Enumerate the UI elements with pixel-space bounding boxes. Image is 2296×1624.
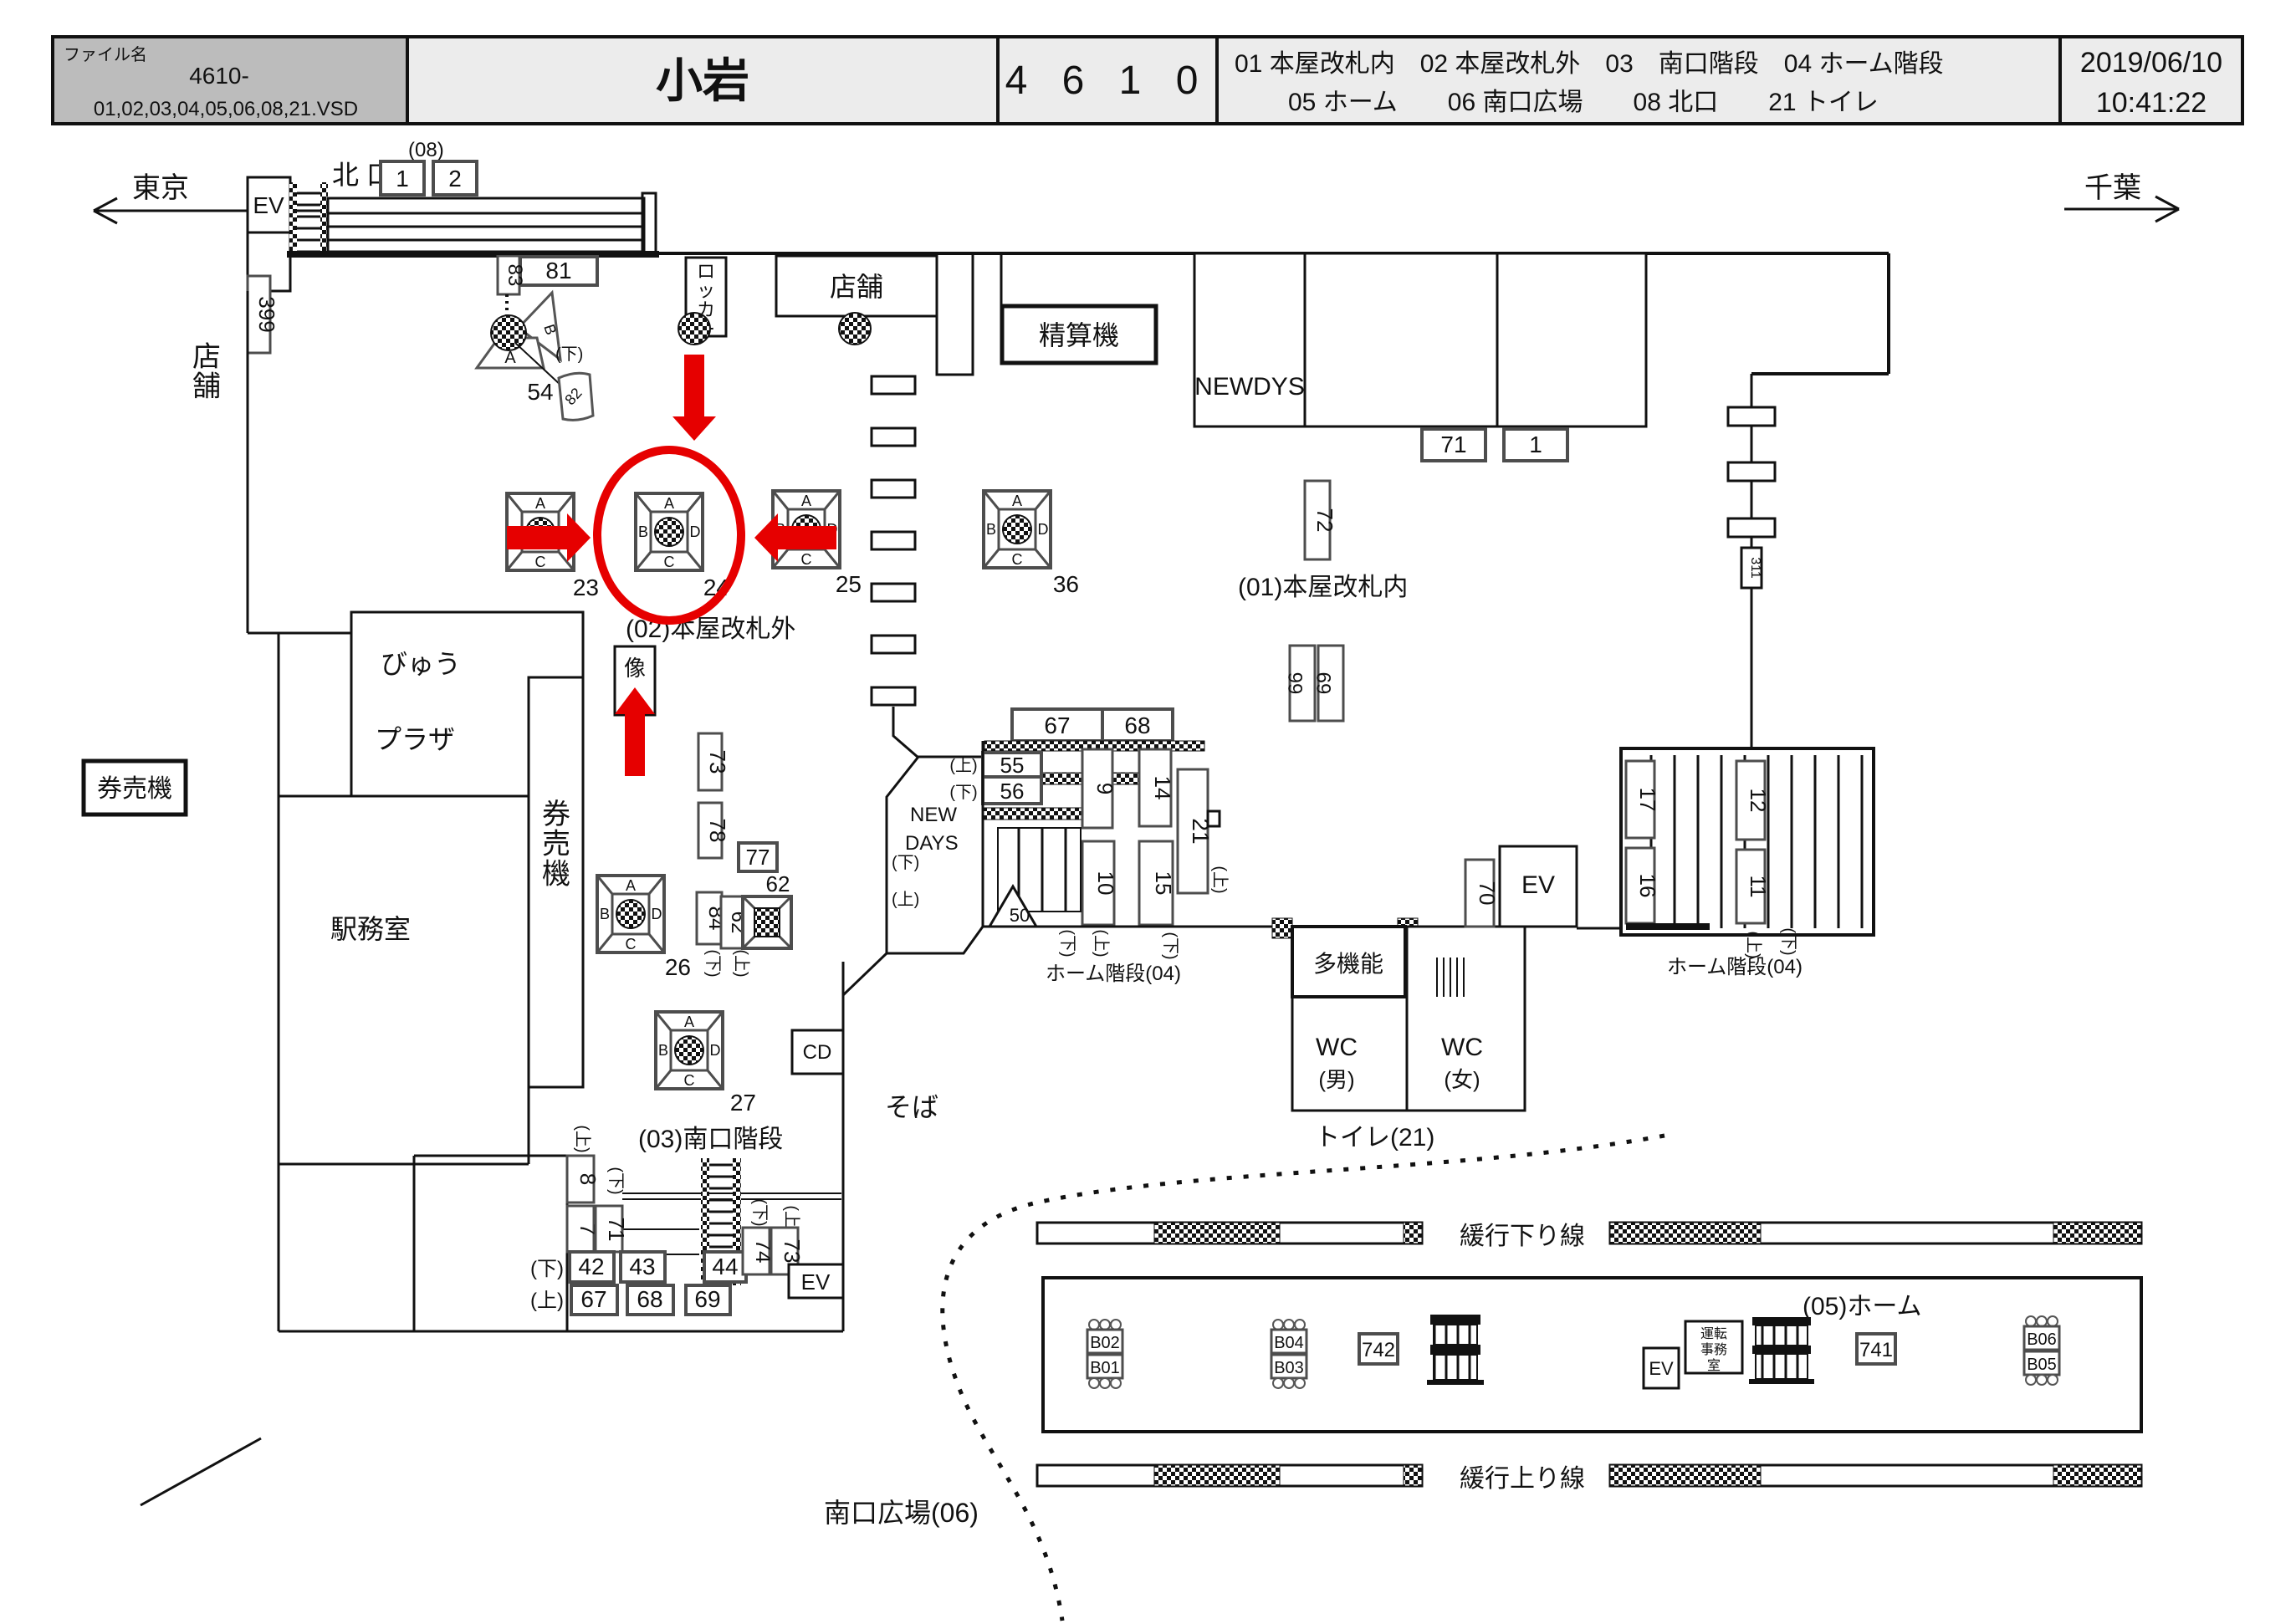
pillar-27: A B C D 27 bbox=[656, 1012, 756, 1116]
south-stairs-area: (03)南口階段 (上) 8 (下) 7 71 (下) 42 43 44 (上)… bbox=[279, 953, 938, 1331]
ad-box-56-label: 56 bbox=[1000, 779, 1025, 804]
ad-box-70-label: 70 bbox=[1475, 881, 1500, 906]
east-label: 千葉 bbox=[2084, 172, 2141, 204]
label-up: (上) bbox=[892, 890, 919, 909]
platform-ev-label: EV bbox=[1649, 1358, 1674, 1379]
ad-box-69n-label: 69 bbox=[1313, 672, 1336, 695]
ticket-gate bbox=[1728, 407, 1775, 426]
ad-box-66-label: 66 bbox=[1285, 672, 1307, 695]
pillar-62-core bbox=[754, 908, 780, 937]
pillar-face-a: A bbox=[801, 493, 811, 509]
soba-wall bbox=[843, 953, 887, 995]
ops-room-line1: 運転 bbox=[1700, 1326, 1727, 1341]
station-name: 小岩 bbox=[656, 54, 749, 107]
gate-wall-bend bbox=[893, 707, 918, 758]
pillar-face-a: A bbox=[1012, 493, 1022, 509]
ad-box-43-label: 43 bbox=[629, 1254, 655, 1279]
room-3 bbox=[1497, 253, 1646, 426]
pillar-54-num: 54 bbox=[527, 379, 553, 405]
ticket-gate bbox=[1728, 518, 1775, 537]
ops-room-line3: 室 bbox=[1707, 1358, 1721, 1373]
track-bar-hatch bbox=[1404, 1223, 1422, 1244]
ad-box-14-label: 14 bbox=[1150, 776, 1175, 800]
fence-hatch bbox=[1041, 773, 1082, 784]
bench-b06-b05: B06 B05 bbox=[2024, 1316, 2059, 1385]
east-stairs: 17 16 12 11 (上) (下) ホーム階段(04) bbox=[1621, 748, 1874, 978]
north-walkway-lines bbox=[328, 213, 644, 240]
ticket-gate bbox=[1728, 462, 1775, 481]
bench-b06-label: B06 bbox=[2027, 1330, 2057, 1349]
west-label: 東京 bbox=[132, 172, 189, 204]
platform-stairs-1 bbox=[1427, 1315, 1484, 1385]
ticket-gate bbox=[872, 480, 915, 498]
date: 2019/06/10 bbox=[2080, 47, 2222, 79]
pillar-face-c: C bbox=[626, 936, 637, 952]
label-down: (下) bbox=[703, 949, 722, 977]
station-map-canvas: ファイル名 4610- 01,02,03,04,05,06,08,21.VSD … bbox=[0, 0, 2296, 1624]
ad-box-44-label: 44 bbox=[712, 1254, 738, 1279]
pillar-face-a: A bbox=[535, 495, 545, 512]
pillar-face-d: D bbox=[1038, 521, 1049, 538]
ad-box-1-label: 1 bbox=[396, 166, 409, 192]
track-bar-hatch bbox=[1154, 1223, 1280, 1244]
pillar-face-c: C bbox=[801, 551, 812, 568]
ticket-gate bbox=[872, 687, 915, 705]
label-up: (上) bbox=[573, 1125, 592, 1152]
pillar-54-down: (下) bbox=[555, 345, 583, 364]
bench-b05-label: B05 bbox=[2027, 1356, 2057, 1374]
ad-box-67s-label: 67 bbox=[580, 1286, 606, 1312]
label-down: (下) bbox=[606, 1167, 625, 1194]
wall-pillar bbox=[937, 253, 973, 375]
label-up: (上) bbox=[949, 756, 977, 775]
east-stairs-thick-line bbox=[1626, 923, 1710, 930]
label-up: (上) bbox=[1092, 929, 1111, 957]
north-walkway bbox=[328, 198, 644, 252]
platform-stairs-2 bbox=[1749, 1317, 1814, 1384]
room-2 bbox=[1305, 253, 1497, 426]
soba-label: そば bbox=[885, 1092, 938, 1122]
shop-center-label: 店舗 bbox=[830, 272, 883, 302]
ad-box-10-label: 10 bbox=[1093, 871, 1118, 896]
bench-b01-label: B01 bbox=[1090, 1359, 1120, 1377]
ad-box-741-label: 741 bbox=[1859, 1339, 1893, 1361]
label-down: (下) bbox=[1779, 927, 1797, 955]
ad-box-77-label: 77 bbox=[746, 845, 770, 870]
ad-box-2-label: 2 bbox=[448, 166, 462, 192]
west-rooms: 券売機 びゅう プラザ 券売機 駅務室 bbox=[84, 612, 583, 1331]
label-up: (上) bbox=[1210, 866, 1230, 893]
file-name-line2: 01,02,03,04,05,06,08,21.VSD bbox=[94, 98, 358, 120]
pillar-face-d: D bbox=[652, 906, 662, 922]
newdys-label: NEWDYS bbox=[1194, 373, 1305, 401]
pillar-face-d: D bbox=[710, 1042, 721, 1059]
ticket-gate bbox=[872, 376, 915, 394]
track-bar-hatch bbox=[2053, 1465, 2141, 1486]
ad-box-73s-label: 73 bbox=[780, 1239, 805, 1264]
ad-box-67c-label: 67 bbox=[1044, 712, 1070, 738]
area05-label: (05)ホーム bbox=[1803, 1293, 1921, 1320]
legend-line2: 05 ホーム 06 南口広場 08 北口 21 トイレ bbox=[1288, 89, 1879, 116]
ad-box-71s-label: 71 bbox=[604, 1218, 629, 1242]
station-office-label: 駅務室 bbox=[330, 914, 411, 944]
ops-room-line2: 事務 bbox=[1700, 1342, 1727, 1357]
concourse-ev-label: EV bbox=[1521, 871, 1555, 899]
central-stairs: NEW DAYS (下) (上) 67 68 (上) 55 (下) 56 9 1… bbox=[887, 709, 1292, 985]
pillar-54-column bbox=[491, 315, 526, 350]
column-shop bbox=[839, 313, 871, 345]
north-stairs-treads bbox=[297, 186, 320, 254]
ad-box-399-label: 399 bbox=[254, 296, 279, 332]
pillar-36-num: 36 bbox=[1053, 571, 1079, 597]
south-ev-label: EV bbox=[801, 1269, 831, 1295]
track-bar-hatch bbox=[1154, 1465, 1280, 1486]
ad-box-42-label: 42 bbox=[578, 1254, 604, 1279]
pillar-54-a: A bbox=[504, 349, 516, 367]
label-down: (下) bbox=[750, 1198, 769, 1226]
platform-outline bbox=[1043, 1278, 2141, 1432]
ad-box-83-label: 83 bbox=[504, 264, 526, 287]
ad-box-73-label: 73 bbox=[705, 750, 730, 774]
ad-box-81-label: 81 bbox=[545, 258, 571, 283]
ticket-gate bbox=[872, 428, 915, 446]
pillar-face-b: B bbox=[638, 523, 648, 540]
pillar-face-c: C bbox=[684, 1072, 695, 1089]
pillar-face-a: A bbox=[664, 495, 674, 512]
shop-west-label: 店舗 bbox=[192, 341, 221, 403]
ticket-gate bbox=[872, 584, 915, 601]
wc-women: WC bbox=[1441, 1034, 1483, 1061]
bench-b04-label: B04 bbox=[1274, 1334, 1304, 1352]
north-stairs-rail-left bbox=[289, 182, 297, 256]
column-locker bbox=[678, 313, 710, 345]
ad-box-71n-label: 71 bbox=[1440, 432, 1466, 457]
view-plaza-line1: びゅう bbox=[381, 649, 461, 679]
label-down: (下) bbox=[530, 1258, 564, 1280]
view-plaza-line2: プラザ bbox=[375, 724, 455, 754]
pillar-face-c: C bbox=[1012, 551, 1023, 568]
ad-box-9-label: 9 bbox=[1092, 783, 1117, 794]
fence-hatch bbox=[1272, 918, 1292, 938]
wc-men-sub: (男) bbox=[1318, 1067, 1354, 1092]
label-down: (下) bbox=[892, 854, 919, 872]
central-stairs-label: ホーム階段(04) bbox=[1046, 963, 1181, 985]
wc-men: WC bbox=[1316, 1034, 1358, 1061]
ad-box-1n-label: 1 bbox=[1529, 432, 1542, 457]
toilet-label: トイレ(21) bbox=[1315, 1124, 1434, 1152]
direction-east: 千葉 bbox=[2064, 172, 2179, 222]
file-name-label: ファイル名 bbox=[64, 45, 147, 64]
label-up: (上) bbox=[1744, 931, 1763, 958]
bench-b02-label: B02 bbox=[1090, 1334, 1120, 1352]
time: 10:41:22 bbox=[2096, 87, 2207, 119]
track-bar-hatch bbox=[1610, 1465, 1761, 1486]
pillar-face-d: D bbox=[690, 523, 701, 540]
legend-line1: 01 本屋改札内 02 本屋改札外 03 南口階段 04 ホーム階段 bbox=[1235, 50, 1944, 78]
cd-label: CD bbox=[803, 1041, 832, 1064]
ad-box-311-label: 311 bbox=[1748, 557, 1762, 579]
track-down-line: 緩行下り線 bbox=[1037, 1223, 2141, 1250]
pillar-24: A B C D 24 bbox=[636, 493, 729, 600]
pillar-face-a: A bbox=[626, 877, 636, 894]
track-up-label: 緩行上り線 bbox=[1460, 1465, 1585, 1493]
area02-ad-cluster: 73 78 77 84 62 62 (下) (上) bbox=[697, 733, 791, 978]
ad-box-17-label: 17 bbox=[1635, 788, 1660, 812]
track-bar-hatch bbox=[1610, 1223, 1761, 1244]
fence-hatch bbox=[983, 808, 1082, 820]
ad-box-16-label: 16 bbox=[1635, 874, 1660, 898]
platform: (05)ホーム B02 B01 B04 B03 742 EV bbox=[1043, 1278, 2141, 1432]
ad-box-15-label: 15 bbox=[1151, 871, 1176, 896]
ticket-machine-sign-label: 券売機 bbox=[97, 775, 172, 803]
wc-women-sub: (女) bbox=[1444, 1067, 1480, 1092]
ad-box-11-label: 11 bbox=[1746, 876, 1771, 898]
ad-box-742-label: 742 bbox=[1362, 1339, 1395, 1361]
pillar-25-num: 25 bbox=[836, 571, 862, 597]
area08-code: (08) bbox=[408, 139, 444, 161]
label-down: (下) bbox=[1161, 932, 1179, 959]
newdays-line2: DAYS bbox=[905, 832, 959, 855]
ad-box-68s-label: 68 bbox=[637, 1286, 662, 1312]
ad-box-72-label: 72 bbox=[1312, 508, 1337, 533]
pillar-27-num: 27 bbox=[730, 1090, 756, 1116]
fare-adjust-label: 精算機 bbox=[1039, 320, 1119, 350]
ticket-gate bbox=[872, 532, 915, 549]
pillar-face-b: B bbox=[658, 1042, 668, 1059]
pillar-54-group: A B 54 (下) 82 bbox=[477, 293, 593, 420]
north-ev-label: EV bbox=[253, 192, 284, 218]
bench-b03-label: B03 bbox=[1274, 1359, 1304, 1377]
ticket-gate bbox=[872, 636, 915, 653]
file-name-line1: 4610- bbox=[189, 63, 249, 89]
label-down: (下) bbox=[949, 784, 977, 802]
area03-label: (03)南口階段 bbox=[638, 1126, 783, 1153]
pillar-face-c: C bbox=[664, 554, 675, 570]
label-down: (下) bbox=[1058, 929, 1076, 957]
ticket-machine-strip-label: 券売機 bbox=[542, 799, 570, 890]
label-up: (上) bbox=[530, 1289, 564, 1312]
pillar-face-a: A bbox=[684, 1014, 694, 1030]
pillar-23-num: 23 bbox=[573, 575, 599, 600]
pillar-62-num: 62 bbox=[766, 871, 790, 896]
ad-box-12-label: 12 bbox=[1746, 789, 1771, 813]
header: ファイル名 4610- 01,02,03,04,05,06,08,21.VSD … bbox=[53, 37, 2242, 124]
track-down-label: 緩行下り線 bbox=[1460, 1223, 1585, 1250]
ad-box-50-label: 50 bbox=[1010, 905, 1030, 926]
bench-b04-b03: B04 B03 bbox=[1271, 1320, 1307, 1388]
ad-box-21-label: 21 bbox=[1188, 818, 1214, 844]
pillar-26-num: 26 bbox=[665, 954, 691, 980]
ad-box-8-label: 8 bbox=[575, 1173, 601, 1185]
plaza-edge-line bbox=[141, 1438, 261, 1505]
red-arrow-down-icon bbox=[672, 355, 716, 441]
label-up: (上) bbox=[732, 949, 751, 977]
track-up-line: 緩行上り線 bbox=[1037, 1465, 2141, 1493]
newdays-line1: NEW bbox=[910, 804, 957, 826]
pillar-face-c: C bbox=[535, 554, 546, 570]
track-bar-hatch bbox=[1404, 1465, 1422, 1486]
ad-box-55-label: 55 bbox=[1000, 753, 1025, 778]
bench-b02-b01: B02 B01 bbox=[1087, 1320, 1122, 1388]
sheet-number: 4 6 1 0 bbox=[1005, 59, 1210, 103]
multifunction-label: 多機能 bbox=[1313, 951, 1383, 977]
area06-label: 南口広場(06) bbox=[824, 1498, 979, 1528]
toilet-area: 多機能 WC (男) WC (女) トイレ(21) 70 EV bbox=[1272, 846, 1621, 1152]
area01-label: (01)本屋改札内 bbox=[1238, 574, 1408, 601]
pillar-face-b: B bbox=[600, 906, 610, 922]
track-bar-hatch bbox=[2053, 1223, 2141, 1244]
statue-label: 像 bbox=[624, 656, 646, 681]
ad-box-69s-label: 69 bbox=[694, 1286, 720, 1312]
east-stairs-label: ホーム階段(04) bbox=[1667, 956, 1803, 978]
pillar-26: A B C D 26 bbox=[597, 876, 691, 980]
pillar-face-b: B bbox=[986, 521, 996, 538]
pillar-36: A B C D 36 bbox=[984, 491, 1079, 597]
ad-box-78-label: 78 bbox=[705, 819, 730, 843]
gate-area bbox=[872, 376, 918, 758]
ad-box-68c-label: 68 bbox=[1124, 712, 1150, 738]
